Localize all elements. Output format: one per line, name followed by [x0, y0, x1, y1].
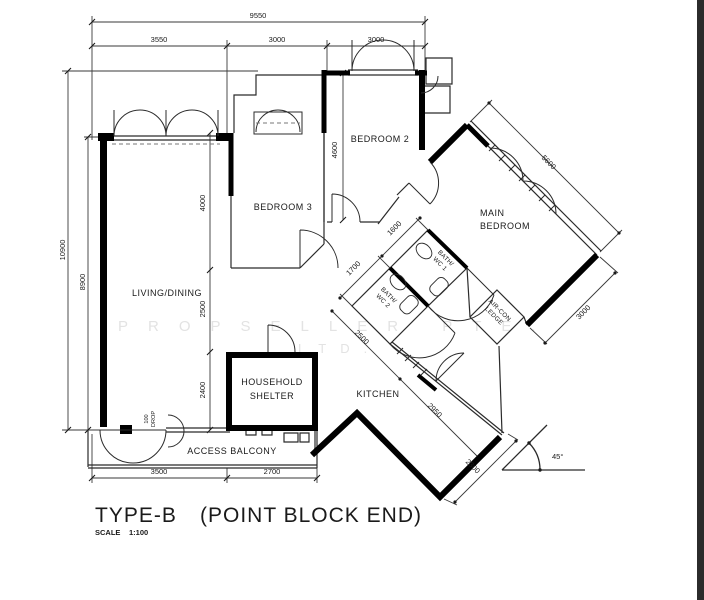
- angle-dot-2: [538, 468, 541, 471]
- screen-right-edge: [697, 0, 704, 600]
- dim-bath1-width: 1600: [385, 219, 403, 237]
- aircon-ledge-outline: [467, 268, 527, 433]
- floor-plan-page: PROPSELLER PTE. LTD.: [0, 0, 704, 600]
- angle-symbol-lines: [502, 425, 585, 470]
- bedroom3-window-icon: [254, 110, 302, 134]
- label-bath2: BATH/ WC 2: [373, 286, 397, 310]
- label-bedroom2: BEDROOM 2: [351, 134, 410, 144]
- dim-bedroom3-width: 3000: [269, 35, 286, 44]
- dim-shelter-depth: 2400: [198, 382, 207, 399]
- label-living-dining: LIVING/DINING: [132, 288, 202, 298]
- living-top-left-block: [98, 133, 114, 141]
- dim-bedroom2-width: 3000: [368, 35, 385, 44]
- label-drop-word: DROP: [151, 411, 157, 427]
- dim-kitchen-width: 2950: [426, 401, 444, 419]
- angle-symbol: [502, 425, 585, 472]
- walls-thick: [98, 70, 597, 497]
- angle-dot-1: [527, 441, 530, 444]
- dim-balcony-right: 2700: [264, 467, 281, 476]
- dim-bedroom2-depth: 4600: [330, 142, 339, 159]
- living-window-icon: [114, 110, 218, 136]
- dim-balcony-left: 3500: [151, 467, 168, 476]
- living-bottom-wall: [166, 428, 230, 432]
- dim-hall-depth: 2500: [198, 301, 207, 318]
- label-bedroom3: BEDROOM 3: [254, 202, 313, 212]
- dim-end-dots: [330, 101, 620, 503]
- bedroom2-corner-frames: [424, 58, 452, 113]
- label-shelter-1: HOUSEHOLD: [241, 377, 303, 387]
- dim-overall-height: 10900: [58, 240, 67, 261]
- label-drop-value: 100: [144, 414, 150, 423]
- label-drop: 100 DROP: [144, 411, 157, 427]
- bath-party-walls: [390, 230, 467, 390]
- dim-bath2-width: 1700: [344, 259, 362, 277]
- entry-diagonal-wall: [430, 125, 467, 162]
- label-shelter-2: SHELTER: [250, 391, 294, 401]
- balcony-main-door-swing: [100, 430, 166, 463]
- dimension-lines: [62, 16, 622, 505]
- bath1-basin: [413, 240, 435, 262]
- dim-living-width: 3550: [151, 35, 168, 44]
- title-variant: (POINT BLOCK END): [200, 504, 422, 527]
- kitchen-ledge-door-swing: [436, 353, 464, 381]
- title-scale-value: 1:100: [129, 528, 148, 537]
- label-main-bedroom-1: MAIN: [480, 208, 505, 218]
- bath2-basin: [387, 271, 409, 293]
- label-access-balcony: ACCESS BALCONY: [187, 446, 277, 456]
- bath1-door-swing: [428, 268, 494, 321]
- bedroom2-window-icon: [352, 40, 414, 71]
- top-recess-steps: [234, 75, 322, 133]
- walls-thin: [88, 58, 601, 468]
- title-type: TYPE-B: [95, 504, 177, 527]
- dim-overall-width: 9550: [250, 11, 267, 20]
- balcony-leaf-door-swing: [168, 415, 184, 447]
- extension-lines: [62, 16, 622, 505]
- room-labels: LIVING/DINING BEDROOM 3 BEDROOM 2 MAIN B…: [132, 134, 563, 461]
- watermark-line1: PROPSELLER PTE.: [118, 318, 556, 335]
- floor-plan-drawing: PROPSELLER PTE. LTD.: [0, 0, 704, 600]
- left-wall: [100, 137, 107, 427]
- main-bedroom-ne-wall: [467, 121, 601, 255]
- foyer-diagonal-wall: [378, 183, 409, 224]
- dim-bedroom3-depth: 4000: [198, 195, 207, 212]
- dim-line-diagonal-chains: [332, 103, 619, 502]
- title-scale-label: SCALE: [95, 528, 120, 537]
- dim-living-height: 8900: [78, 274, 87, 291]
- bedroom2-door-swing: [332, 194, 360, 222]
- main-bedroom-door-swing: [409, 162, 439, 204]
- bedroom3-walls: [231, 133, 324, 268]
- living-top-wall: [114, 136, 216, 140]
- label-kitchen: KITCHEN: [356, 389, 399, 399]
- label-angle: 45°: [552, 452, 563, 461]
- kitchen-chevron-wall: [312, 413, 500, 497]
- label-main-bedroom-2: BEDROOM: [480, 221, 530, 231]
- dim-main-bedroom-depth: 3000: [574, 303, 592, 321]
- title-block: TYPE-B (POINT BLOCK END) SCALE 1:100: [95, 504, 422, 537]
